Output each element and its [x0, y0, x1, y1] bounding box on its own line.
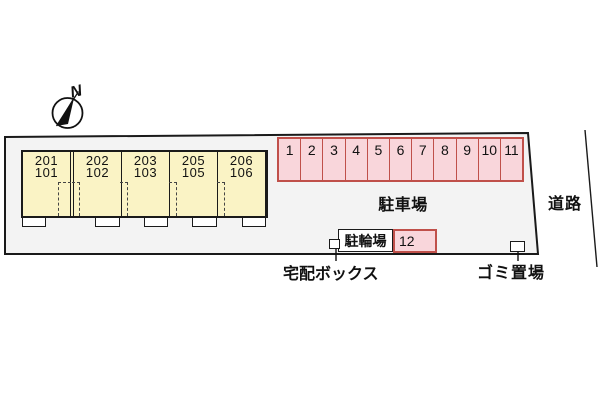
parking-space: 5 [368, 139, 390, 180]
parking-space: 7 [412, 139, 434, 180]
garbage-area-label: ゴミ置場 [477, 259, 545, 283]
north-compass-icon: N [53, 82, 85, 128]
parking-space: 3 [323, 139, 345, 180]
stair-dashed-mark [169, 182, 177, 216]
stair-dashed-mark [58, 182, 71, 216]
unit-number-lower: 106 [218, 167, 265, 179]
unit-cell-206-106: 206 106 [218, 152, 266, 216]
entrance-porch [242, 217, 266, 227]
parking-space: 1 [279, 139, 301, 180]
entrance-porch [22, 217, 46, 227]
unit-cell-205-105: 205 105 [170, 152, 218, 216]
parking-space: 10 [479, 139, 501, 180]
road-label: 道路 [548, 190, 582, 214]
entrance-porch [144, 217, 168, 227]
stair-dashed-mark [120, 182, 128, 216]
parking-space: 8 [434, 139, 456, 180]
delivery-box-icon [329, 239, 340, 249]
unit-number-lower: 105 [170, 167, 217, 179]
stair-dashed-mark [72, 182, 80, 216]
entrance-porch [95, 217, 120, 227]
garbage-area-icon [510, 241, 525, 252]
stair-dashed-mark [217, 182, 225, 216]
bicycle-parking-label-box: 駐輪場 [338, 229, 393, 252]
site-plan-diagram: N 201 101 202 102 203 103 205 105 206 10… [0, 0, 600, 400]
unit-cell-203-103: 203 103 [122, 152, 170, 216]
delivery-box-label: 宅配ボックス [283, 260, 379, 284]
parking-space: 6 [390, 139, 412, 180]
unit-cell-202-102: 202 102 [74, 152, 122, 216]
parking-lot-label: 駐車場 [367, 191, 439, 215]
parking-space-12: 12 [393, 229, 437, 253]
unit-number-lower: 103 [122, 167, 169, 179]
parking-space: 2 [301, 139, 323, 180]
parking-space: 9 [457, 139, 479, 180]
road-edge-line [585, 130, 597, 267]
parking-space: 11 [501, 139, 522, 180]
apartment-building: 201 101 202 102 203 103 205 105 206 106 [21, 150, 268, 218]
parking-space-strip: 1 2 3 4 5 6 7 8 9 10 11 [277, 137, 524, 182]
unit-number-lower: 101 [23, 167, 70, 179]
unit-number-lower: 102 [74, 167, 121, 179]
parking-space: 4 [346, 139, 368, 180]
entrance-porch [192, 217, 217, 227]
